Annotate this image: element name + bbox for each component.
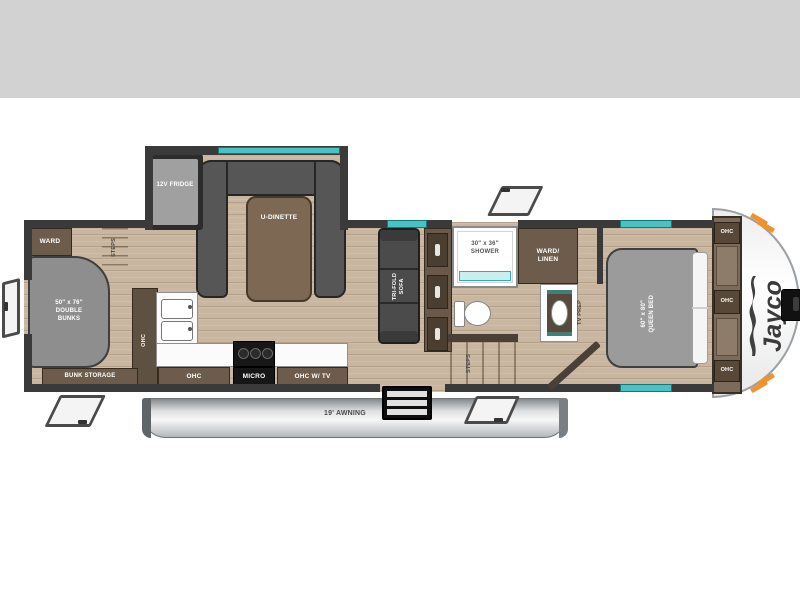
sofa-armrest bbox=[380, 331, 418, 342]
entry-step-tread bbox=[387, 400, 427, 406]
bunk-exterior-door bbox=[50, 392, 116, 438]
window-bedroom-bottom bbox=[620, 384, 672, 392]
window-over-sofa bbox=[387, 220, 427, 228]
shower-glass bbox=[459, 271, 511, 281]
entry-door-patio-side bbox=[468, 392, 528, 430]
burner-icon bbox=[262, 348, 273, 359]
bunk-storage-label: BUNK STORAGE bbox=[42, 368, 138, 386]
awning-end-cap-left bbox=[142, 398, 151, 438]
pantry-item-icon bbox=[435, 286, 440, 298]
shower-label: 30" x 36" SHOWER bbox=[456, 236, 514, 262]
bunk-ward-label: WARD bbox=[28, 228, 72, 256]
kitchen-sink-basin bbox=[161, 321, 193, 341]
fridge-label: 12V FRIDGE bbox=[147, 180, 203, 192]
wall-top-front bbox=[518, 220, 714, 228]
entry-step-tread bbox=[387, 391, 427, 397]
door-handle-icon bbox=[4, 302, 8, 311]
ward-linen-label: WARD/ LINEN bbox=[518, 228, 578, 284]
sofa-armrest bbox=[380, 230, 418, 241]
window-bedroom-top bbox=[620, 220, 672, 228]
slide-wall-right bbox=[340, 146, 348, 230]
bunk-steps-label: STEPS bbox=[104, 228, 126, 268]
pantry-item-icon bbox=[435, 328, 440, 340]
bath-steps bbox=[450, 342, 520, 386]
bedroom-partition-wall bbox=[597, 222, 603, 284]
faucet-icon bbox=[188, 305, 192, 309]
kitchen-tall-cabinet-label: OHC bbox=[134, 320, 156, 360]
awning-end-cap-right bbox=[559, 398, 568, 438]
wall-rear-lower bbox=[24, 334, 32, 392]
door-handle-icon bbox=[494, 418, 503, 422]
faucet-icon bbox=[188, 327, 192, 331]
rear-door bbox=[0, 274, 26, 340]
burner-icon bbox=[250, 348, 261, 359]
queen-bed-label: 60" x 80" QUEEN BED bbox=[636, 278, 662, 350]
entry-step-tread bbox=[387, 409, 427, 415]
vanity-accent bbox=[547, 290, 572, 294]
double-bunks-label: 50" x 76" DOUBLE BUNKS bbox=[28, 296, 110, 328]
wall-top-rear bbox=[24, 220, 145, 228]
vanity-accent bbox=[547, 332, 572, 336]
toilet-bowl bbox=[464, 301, 491, 326]
kitchen-sink-basin bbox=[161, 299, 193, 319]
wall-bottom-front bbox=[445, 384, 714, 392]
burner-icon bbox=[238, 348, 249, 359]
tv-prep-label: TV PREP bbox=[574, 290, 588, 334]
front-ohc-label: OHC bbox=[714, 222, 740, 244]
entry-door-offdoor-side bbox=[477, 186, 535, 222]
slide-window bbox=[218, 147, 340, 154]
wardrobe-panel bbox=[716, 318, 738, 356]
microwave-label: MICRO bbox=[233, 367, 275, 387]
front-ohc-label: OHC bbox=[714, 360, 740, 382]
front-ohc-label: OHC bbox=[714, 290, 740, 314]
rv-floorplan: 19' AWNING Jayco U-DINETTE 12V FRIDGE bbox=[0, 0, 800, 600]
kitchen-ohc-tv-label: OHC W/ TV bbox=[277, 367, 348, 387]
fridge-body bbox=[152, 159, 198, 225]
bed-pillow-seam bbox=[692, 307, 708, 309]
hitch-pin bbox=[793, 297, 799, 311]
dinette-label: U-DINETTE bbox=[246, 212, 312, 224]
door-handle-icon bbox=[78, 420, 87, 424]
awning-label: 19' AWNING bbox=[300, 408, 390, 420]
header-band bbox=[0, 0, 800, 98]
bath-sink bbox=[551, 300, 568, 326]
door-handle-icon bbox=[501, 188, 510, 192]
pantry-item-icon bbox=[435, 244, 440, 256]
sofa-label: TRI-FOLD SOFA bbox=[382, 248, 416, 326]
wardrobe-panel bbox=[716, 246, 738, 286]
bath-partition-wall bbox=[448, 334, 518, 342]
kitchen-ohc-label: OHC bbox=[158, 367, 230, 387]
bath-steps-label: STEPS bbox=[462, 344, 478, 384]
